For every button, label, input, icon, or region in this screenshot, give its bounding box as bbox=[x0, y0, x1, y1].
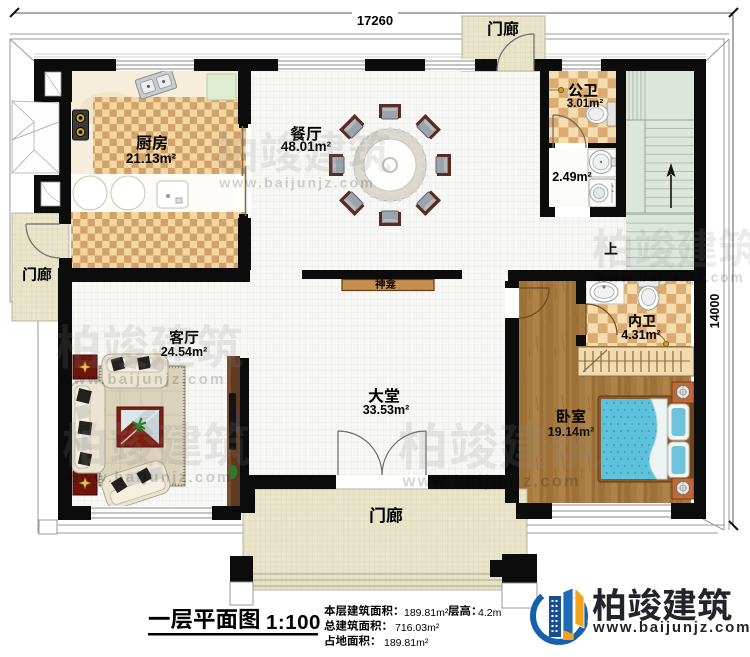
svg-text:www.baijunjz.com: www.baijunjz.com bbox=[592, 619, 750, 636]
svg-text:1:100: 1:100 bbox=[266, 611, 321, 634]
svg-text:716.03m²: 716.03m² bbox=[395, 622, 440, 634]
svg-text:189.81m²: 189.81m² bbox=[404, 607, 449, 619]
svg-text:4.2m: 4.2m bbox=[478, 607, 502, 619]
svg-text:2.49m²: 2.49m² bbox=[552, 170, 592, 184]
svg-text:17260: 17260 bbox=[357, 13, 393, 28]
svg-text:33.53m²: 33.53m² bbox=[363, 403, 410, 417]
svg-text:189.81m²: 189.81m² bbox=[384, 637, 429, 649]
svg-text:4.31m²: 4.31m² bbox=[621, 328, 661, 342]
svg-text:14000: 14000 bbox=[708, 294, 722, 329]
svg-text:3.01m²: 3.01m² bbox=[567, 98, 604, 110]
svg-text:21.13m²: 21.13m² bbox=[126, 151, 177, 166]
